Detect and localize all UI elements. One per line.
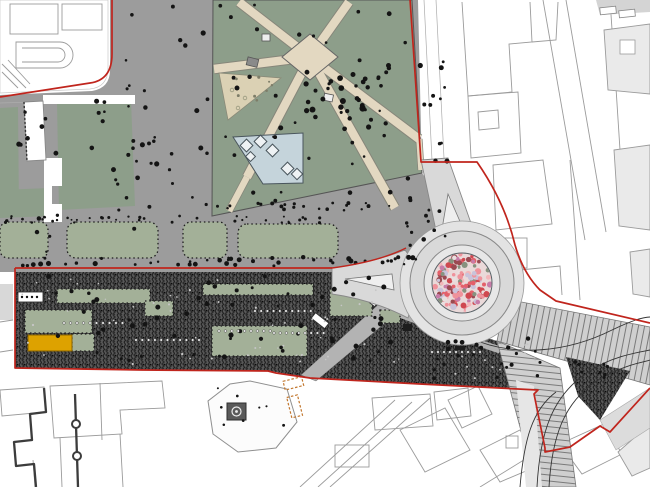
flower-dot (462, 258, 465, 261)
tree-dot (170, 152, 174, 156)
tree-dot (270, 201, 274, 205)
tree-dot (205, 152, 209, 156)
tree-dot (292, 206, 295, 209)
flower-dot (445, 303, 449, 307)
tree-dot (211, 358, 213, 360)
tree-dot (272, 136, 274, 138)
tree-dot (31, 262, 36, 267)
tree-dot (41, 218, 43, 220)
trunk-dot (160, 339, 163, 342)
tree-dot (346, 256, 351, 261)
tree-dot (43, 354, 45, 356)
tree-dot (47, 290, 49, 292)
tree-dot (143, 105, 147, 109)
tree-dot (347, 116, 351, 120)
tree-dot (56, 334, 60, 338)
tree-dot (259, 203, 262, 206)
tree-dot (314, 89, 318, 93)
tree-dot (189, 289, 191, 291)
trunk-dot (269, 330, 272, 333)
tree-dot (294, 121, 297, 124)
lawn (0, 188, 51, 218)
tree-dot (345, 204, 348, 207)
tree-dot (341, 305, 343, 307)
tree-dot (178, 215, 181, 218)
tree-dot (128, 318, 131, 321)
tree-dot (70, 278, 72, 280)
tree-dot (45, 250, 47, 252)
trunk-dot (243, 330, 246, 333)
tree-dot (406, 225, 409, 228)
tree-dot (367, 276, 372, 281)
tree-dot (479, 346, 483, 350)
tree-dot (189, 260, 192, 263)
tree-dot (140, 142, 145, 147)
tree-dot (125, 196, 129, 200)
masterplan-canvas[interactable] (0, 0, 650, 487)
tree-dot (127, 215, 129, 217)
tree-dot (443, 86, 446, 89)
tree-dot (206, 97, 210, 101)
hedge-panel (183, 222, 227, 258)
path-gap (43, 95, 135, 104)
trunk-dot (310, 332, 313, 335)
building-footprint (630, 249, 650, 297)
flower-dot (452, 288, 458, 294)
tree-dot (363, 155, 366, 158)
tree-dot (152, 140, 155, 143)
tree-dot (77, 283, 79, 285)
tree-dot (255, 99, 258, 102)
tree-dot (181, 353, 183, 355)
tree-dot (127, 359, 130, 362)
tree-dot (21, 218, 24, 221)
tree-dot (495, 376, 498, 379)
trunk-dot (263, 330, 266, 333)
tree-dot (222, 354, 227, 359)
tree-dot (393, 361, 395, 363)
flower-dot (465, 273, 469, 277)
tree-dot (330, 336, 334, 340)
tree-dot (223, 424, 226, 427)
trunk-dot (89, 322, 92, 325)
tree-dot (120, 357, 123, 360)
tree-dot (107, 216, 110, 219)
tree-dot (456, 354, 459, 357)
trunk-dot (443, 351, 446, 354)
tree-dot (403, 263, 405, 265)
tree-dot (276, 260, 280, 264)
tree-dot (332, 287, 337, 292)
tree-dot (94, 99, 99, 104)
tree-dot (281, 221, 283, 223)
tree-dot (138, 219, 141, 222)
flower-dot (440, 265, 445, 270)
tree-dot (254, 347, 256, 349)
tree-dot (67, 310, 69, 312)
trunk-dot (108, 322, 111, 325)
tree-dot (125, 59, 128, 62)
tree-dot (228, 333, 233, 338)
tree-dot (351, 356, 356, 361)
tree-dot (499, 369, 501, 371)
tree-dot (366, 85, 370, 89)
tree-dot (302, 216, 305, 219)
tree-dot (384, 121, 388, 125)
tree-dot (505, 366, 508, 369)
tree-dot (271, 84, 273, 86)
tree-dot (35, 230, 39, 234)
trunk-dot (310, 310, 313, 313)
tree-dot (432, 228, 436, 232)
tree-dot (192, 353, 195, 356)
tree-dot (155, 315, 160, 320)
tree-dot (375, 289, 377, 291)
tree-dot (272, 264, 275, 267)
tree-dot (344, 280, 348, 284)
tree-dot (386, 63, 391, 68)
tree-dot (326, 87, 329, 90)
tree-dot (268, 81, 270, 83)
tree-dot (259, 337, 263, 341)
tree-dot (101, 327, 105, 331)
tree-dot (360, 208, 362, 210)
tree-dot (369, 359, 372, 362)
trunk-dot (185, 339, 188, 342)
tree-dot (403, 41, 406, 44)
flower-dot (477, 293, 482, 298)
trunk-dot (298, 332, 301, 335)
tree-dot (205, 302, 209, 306)
tree-dot (606, 365, 609, 368)
flower-dot (457, 291, 463, 297)
tree-dot (331, 202, 334, 205)
tree-dot (48, 298, 50, 300)
tree-dot (147, 141, 151, 145)
tree-dot (428, 103, 432, 107)
tree-dot (97, 111, 101, 115)
tree-dot (405, 221, 408, 224)
tree-dot (387, 11, 392, 16)
tree-dot (105, 299, 106, 300)
tree-dot (388, 190, 393, 195)
tree-dot (134, 263, 137, 266)
tree-dot (143, 89, 146, 92)
trunk-dot (250, 330, 253, 333)
tree-dot (466, 366, 468, 368)
trunk-dot (279, 310, 282, 313)
trunk-dot (297, 310, 300, 313)
tree-dot (5, 219, 7, 221)
tree-dot (89, 217, 91, 219)
tree-dot (366, 124, 371, 129)
tree-dot (410, 231, 413, 234)
flower-dot (437, 279, 440, 282)
tree-dot (31, 221, 34, 224)
trunk-dot (461, 351, 464, 354)
trunk-dot (147, 339, 150, 342)
tree-dot (258, 407, 260, 409)
tree-dot (304, 218, 307, 221)
tree-dot (265, 405, 267, 407)
flower-dot (482, 283, 486, 287)
tree-dot (343, 209, 346, 212)
tree-dot (305, 70, 310, 75)
trunk-dot (256, 330, 259, 333)
tree-dot (195, 337, 197, 339)
tree-dot (299, 323, 304, 328)
flower-dot (443, 276, 447, 280)
flower-dot (452, 277, 457, 282)
tree-dot (100, 257, 103, 260)
tree-dot (510, 360, 512, 362)
trunk-dot (316, 332, 319, 335)
tree-dot (313, 115, 318, 120)
tree-dot (373, 316, 376, 319)
trunk-dot (82, 322, 85, 325)
tree-dot (304, 108, 309, 113)
tree-dot (371, 301, 373, 303)
tree-dot (318, 208, 321, 211)
tree-dot (23, 111, 26, 114)
tree-dot (126, 87, 129, 90)
trunk-dot (467, 351, 470, 354)
tree-dot (524, 352, 526, 354)
trunk-dot (224, 330, 227, 333)
tree-dot (171, 5, 175, 9)
flower-dot (452, 256, 456, 260)
tree-dot (538, 361, 541, 364)
tree-dot (111, 167, 116, 172)
tree-dot (519, 345, 520, 346)
tree-dot (307, 157, 310, 160)
church-outline (14, 388, 46, 487)
tree-dot (270, 256, 274, 260)
tree-dot (454, 373, 456, 375)
tree-dot (418, 63, 423, 68)
tree-dot (56, 219, 58, 221)
flower-dot (461, 303, 467, 309)
tree-dot (149, 262, 152, 265)
tree-dot (269, 319, 272, 322)
tree-dot (325, 41, 328, 44)
trunk-dot (266, 310, 269, 313)
tree-dot (371, 328, 375, 332)
tree-dot (253, 95, 256, 98)
tree-dot (278, 125, 283, 130)
tree-dot (359, 303, 361, 305)
northwest-building-parcel (0, 0, 108, 93)
tree-dot (230, 303, 234, 307)
tree-dot (242, 419, 245, 422)
bench (455, 346, 465, 350)
tree-dot (117, 208, 120, 211)
trunk-dot (322, 332, 325, 335)
tree-dot (378, 110, 380, 112)
tree-dot (433, 368, 436, 371)
tree-dot (354, 84, 357, 87)
tree-dot (37, 216, 41, 220)
tree-dot (229, 15, 233, 19)
grove-lawn-panel (72, 334, 94, 351)
trunk-dot (285, 332, 288, 335)
existing-building (24, 101, 46, 161)
tree-dot (237, 257, 242, 262)
tree-dot (534, 350, 537, 353)
tree-dot (282, 345, 284, 347)
tree-dot (44, 216, 46, 218)
tree-dot (36, 282, 38, 284)
tree-dot (153, 302, 155, 304)
flower-dot (477, 287, 481, 291)
tree-dot (251, 191, 255, 195)
tree-dot (439, 65, 444, 70)
tree-dot (302, 205, 305, 208)
tree-dot (217, 279, 219, 281)
tree-dot (273, 199, 277, 203)
tree-dot (599, 371, 602, 374)
utility-box (403, 324, 412, 331)
tree-dot (333, 318, 336, 321)
tree-dot (131, 139, 135, 143)
tree-dot (103, 110, 106, 113)
tree-dot (176, 263, 180, 267)
tree-dot (515, 352, 518, 355)
tree-dot (229, 337, 232, 340)
tree-dot (101, 119, 105, 123)
tree-dot (115, 219, 117, 221)
tree-dot (491, 366, 493, 368)
trunk-dot (272, 310, 275, 313)
tree-dot (113, 319, 115, 321)
tree-dot (218, 301, 220, 303)
trunk-dot (254, 310, 257, 313)
tree-dot (324, 320, 326, 322)
tree-dot (265, 219, 267, 221)
tree-dot (287, 292, 290, 295)
tree-dot (220, 406, 223, 409)
tree-dot (64, 263, 67, 266)
tree-dot (217, 387, 219, 389)
tree-dot (101, 216, 104, 219)
flower-dot (478, 276, 482, 280)
tree-dot (138, 216, 141, 219)
tree-dot (51, 220, 54, 223)
flower-dot (462, 262, 468, 268)
flower-dot (472, 292, 476, 296)
tree-dot (218, 4, 222, 8)
tree-dot (388, 340, 393, 345)
tree-dot (21, 264, 25, 268)
tree-dot (247, 75, 251, 79)
flower-dot (477, 260, 481, 264)
tree-dot (342, 126, 347, 131)
tree-dot (66, 217, 69, 220)
flower-dot (468, 281, 472, 285)
tree-dot (140, 355, 143, 358)
tree-dot (580, 371, 583, 374)
tree-dot (116, 182, 119, 185)
tree-dot (189, 358, 191, 360)
hedge-panel (0, 222, 48, 258)
tree-dot (130, 323, 135, 328)
tree-dot (534, 360, 536, 362)
flower-dot (472, 271, 477, 276)
tree-dot (176, 296, 178, 298)
tree-dot (25, 136, 30, 141)
lawn (57, 100, 135, 210)
tree-dot (277, 347, 278, 348)
tree-dot (526, 336, 530, 340)
tree-dot (76, 219, 78, 221)
flower-dot (467, 302, 471, 306)
tree-dot (157, 261, 159, 263)
trunk-dot (304, 332, 307, 335)
flower-dot (450, 303, 457, 310)
tree-dot (126, 153, 130, 157)
flower-dot (457, 260, 462, 265)
tree-dot (363, 343, 365, 345)
tree-dot (46, 261, 51, 266)
flower-dot (445, 262, 451, 268)
tree-dot (311, 319, 313, 321)
tree-dot (279, 204, 283, 208)
flower-dot (475, 300, 480, 305)
trunk-dot (198, 339, 201, 342)
tree-dot (364, 108, 367, 111)
tree-dot (461, 355, 463, 357)
tree-dot (53, 151, 58, 156)
tree-dot (265, 89, 268, 92)
trunk-dot (76, 322, 79, 325)
sidewalk-sliver (0, 284, 13, 320)
trunk-dot (473, 351, 476, 354)
trunk-dot (291, 310, 294, 313)
tree-dot (235, 288, 239, 292)
tree-dot (378, 321, 383, 326)
tree-dot (338, 104, 343, 109)
flower-dot (486, 275, 491, 280)
tree-dot (310, 107, 316, 113)
tree-dot (474, 343, 478, 347)
tree-dot (386, 259, 389, 262)
tree-dot (150, 162, 153, 165)
roundabout (400, 221, 524, 345)
tree-dot (55, 292, 58, 295)
tree-dot (274, 94, 278, 98)
flower-dot (441, 272, 445, 276)
tree-dot (338, 85, 344, 91)
tree-dot (130, 13, 134, 17)
tree-dot (226, 207, 229, 210)
trunk-dot (237, 330, 240, 333)
tree-dot (573, 360, 577, 364)
flower-dot (475, 282, 480, 287)
tree-dot (427, 209, 430, 212)
tree-dot (534, 357, 535, 358)
tree-dot (340, 98, 346, 104)
tree-dot (26, 264, 29, 267)
tree-dot (82, 310, 86, 314)
tree-dot (213, 284, 218, 289)
tree-dot (170, 310, 172, 312)
tree-dot (312, 34, 315, 37)
tree-dot (247, 354, 249, 356)
monument-plaza-outline (208, 381, 297, 452)
tree-dot (367, 204, 371, 208)
flower-dot (466, 257, 471, 262)
tree-dot (281, 349, 285, 353)
